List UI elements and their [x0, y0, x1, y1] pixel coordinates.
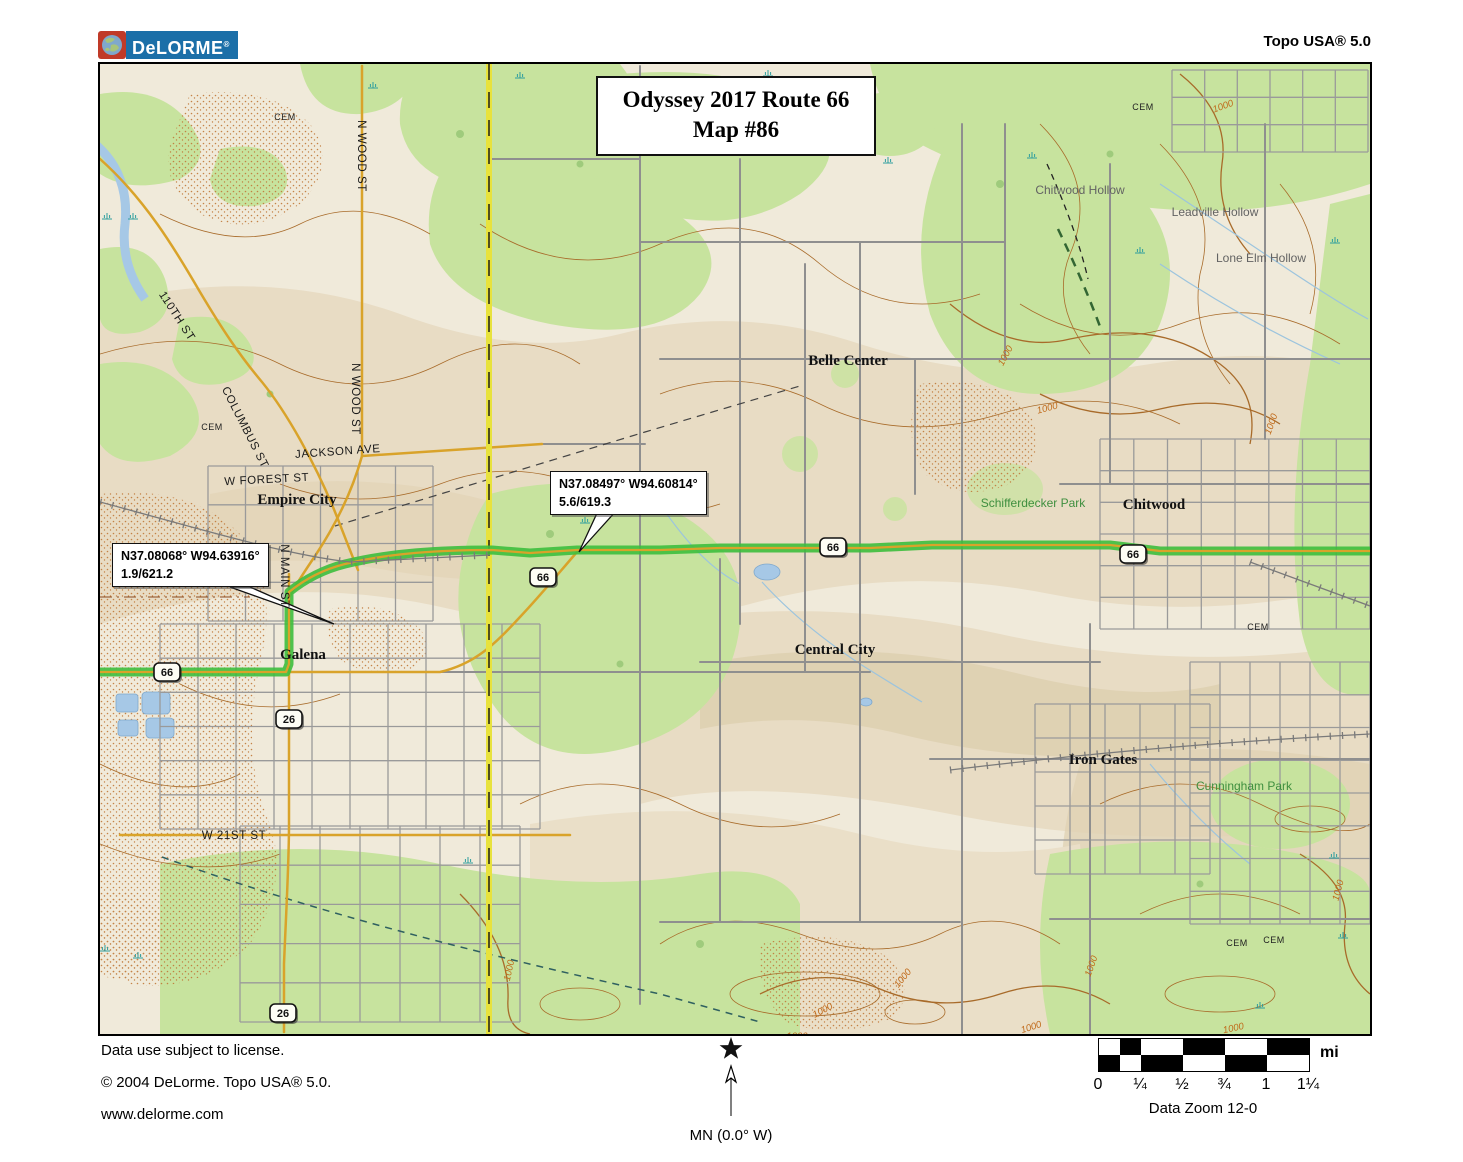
scale-segment	[1120, 1055, 1141, 1071]
scale-ticks: 0¼½¾11¼	[1098, 1076, 1308, 1096]
scale-bar-graphic	[1098, 1038, 1310, 1072]
delorme-logo: DeLORME®	[98, 31, 238, 59]
scale-segment	[1099, 1039, 1120, 1055]
scale-tick: 1¼	[1297, 1076, 1319, 1094]
data-zoom-label: Data Zoom 12-0	[1149, 1100, 1257, 1117]
route-shield-26: 26	[276, 710, 304, 730]
scale-tick: 1	[1262, 1076, 1271, 1094]
map-label-city: Galena	[280, 647, 326, 663]
route-shield-66: 66	[820, 538, 848, 558]
map-label-hollow: Chitwood Hollow	[1035, 183, 1125, 197]
waypoint-2-stats: 5.6/619.3	[559, 493, 698, 511]
map-label-city: Iron Gates	[1069, 752, 1138, 768]
compass: MN (0.0° W)	[687, 1036, 775, 1144]
scale-tick: 0	[1094, 1076, 1103, 1094]
waypoint-callout-1[interactable]: N37.08068° W94.63916° 1.9/621.2	[112, 543, 269, 587]
scale-segment	[1099, 1055, 1120, 1071]
map-label-cem: CEM	[274, 112, 296, 122]
scale-segment	[1141, 1039, 1183, 1055]
map-label-cem: CEM	[201, 422, 223, 432]
scale-segment	[1225, 1055, 1267, 1071]
map-title-line1: Odyssey 2017 Route 66	[602, 85, 870, 115]
route-shield-26: 26	[270, 1004, 298, 1024]
map-label-cem: CEM	[1247, 622, 1269, 632]
map-label-park: Schifferdecker Park	[981, 496, 1086, 510]
map-label-cem: CEM	[1132, 102, 1154, 112]
map-label-city: Central City	[795, 642, 876, 658]
map-label-street: W 21ST ST	[202, 830, 267, 842]
map-label-city: Chitwood	[1123, 497, 1186, 513]
map-label-hollow: Lone Elm Hollow	[1216, 251, 1306, 265]
website-text: www.delorme.com	[101, 1106, 224, 1123]
map-label-city: Empire City	[257, 492, 337, 508]
map-label-hollow: Leadville Hollow	[1172, 205, 1259, 219]
svg-text:66: 66	[161, 667, 173, 679]
route-shield-66: 66	[1120, 545, 1148, 565]
map-label-cem: CEM	[1263, 935, 1285, 945]
waypoint-callout-2[interactable]: N37.08497° W94.60814° 5.6/619.3	[550, 471, 707, 515]
route-shield-66: 66	[530, 568, 558, 588]
svg-text:26: 26	[277, 1008, 289, 1020]
product-title: Topo USA® 5.0	[1264, 33, 1371, 50]
logo-text: DeLORME	[132, 38, 224, 58]
waypoint-2-coords: N37.08497° W94.60814°	[559, 475, 698, 493]
scale-bar: mi 0¼½¾11¼ Data Zoom 12-0	[1098, 1038, 1358, 1096]
scale-unit: mi	[1320, 1044, 1339, 1062]
map-label-street: N WOOD ST	[355, 120, 367, 192]
scale-segment	[1183, 1039, 1225, 1055]
license-text: Data use subject to license.	[101, 1042, 284, 1059]
map-title-box: Odyssey 2017 Route 66 Map #86	[596, 76, 876, 156]
map-label-city: Belle Center	[808, 353, 888, 369]
map-label-cem: CEM	[1226, 938, 1248, 948]
registered-mark: ®	[224, 40, 230, 49]
scale-segment	[1225, 1039, 1267, 1055]
scale-segment	[1183, 1055, 1225, 1071]
north-arrow-icon	[687, 1036, 775, 1120]
map-canvas[interactable]: 666666662626 Empire CityGalenaBelle Cent…	[100, 64, 1370, 1034]
globe-icon	[98, 31, 126, 59]
magnetic-north-label: MN (0.0° W)	[687, 1127, 775, 1144]
svg-text:26: 26	[283, 714, 295, 726]
waypoint-1-stats: 1.9/621.2	[121, 565, 260, 583]
map-label-street: N MAIN ST	[278, 544, 290, 608]
map-label-park: Cunningham Park	[1196, 779, 1293, 793]
scale-segment	[1267, 1039, 1309, 1055]
svg-text:66: 66	[1127, 549, 1139, 561]
scale-segment	[1267, 1055, 1309, 1071]
route-shield-66: 66	[154, 663, 182, 683]
copyright-text: © 2004 DeLorme. Topo USA® 5.0.	[101, 1074, 331, 1091]
scale-segment	[1120, 1039, 1141, 1055]
scale-tick: ½	[1175, 1076, 1188, 1094]
waypoint-1-coords: N37.08068° W94.63916°	[121, 547, 260, 565]
scale-tick: ¼	[1133, 1076, 1146, 1094]
app-window: DeLORME® Topo USA® 5.0	[0, 0, 1463, 1162]
map-frame: 666666662626 Empire CityGalenaBelle Cent…	[98, 62, 1372, 1036]
svg-text:66: 66	[537, 572, 549, 584]
map-label-street: N WOOD ST	[349, 363, 361, 435]
map-label-contour: 1000	[786, 1031, 808, 1034]
logo-wordmark: DeLORME®	[126, 31, 238, 59]
scale-segment	[1141, 1055, 1183, 1071]
scale-tick: ¾	[1217, 1076, 1230, 1094]
map-title-line2: Map #86	[602, 115, 870, 145]
svg-text:66: 66	[827, 542, 839, 554]
